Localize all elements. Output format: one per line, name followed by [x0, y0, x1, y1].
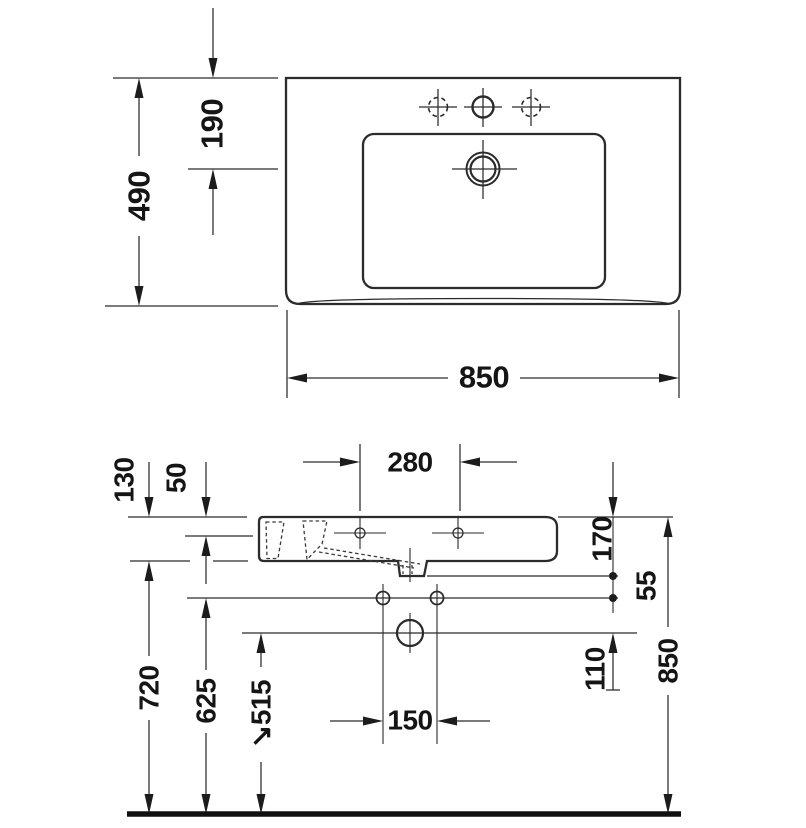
dim-label-170: 170: [587, 516, 618, 561]
dimension-depth-490: 490: [105, 78, 278, 306]
tap-hole-center-icon: [464, 88, 502, 127]
dim-label-110: 110: [580, 647, 611, 691]
top-view: 490 190 850: [105, 8, 680, 398]
profile-tap-hole-right-icon: [432, 518, 484, 549]
side-view: 280 130 50: [109, 444, 684, 814]
dim-label-490: 490: [122, 171, 157, 221]
dim-label-150: 150: [387, 705, 432, 736]
basin-front-edge-line: [298, 299, 668, 304]
dimension-offset-190: 190: [188, 8, 278, 235]
dim-label-190: 190: [195, 99, 230, 149]
tap-hole-left-icon: [419, 89, 457, 126]
dimension-fixing-to-drain-110: 110: [580, 633, 621, 691]
dimension-floor-625: 625: [191, 598, 222, 814]
dim-label-515: ↘515: [246, 680, 277, 748]
dim-label-850-height: 850: [653, 638, 684, 683]
dimension-floor-515: ↘515: [246, 633, 277, 814]
profile-tap-hole-left-icon: [334, 518, 386, 549]
dim-label-55: 55: [631, 571, 662, 601]
tap-hole-right-icon: [512, 89, 550, 126]
dim-label-130: 130: [109, 457, 140, 502]
dimension-width-850: 850: [287, 310, 679, 398]
dim-label-625: 625: [191, 678, 222, 723]
dimension-hole-spacing-150: 150: [330, 705, 490, 736]
dimension-floor-720: 720: [134, 561, 165, 814]
dim-label-50: 50: [161, 463, 192, 493]
dimension-rim-drop-50: 50: [161, 462, 211, 584]
dim-label-850-width: 850: [459, 360, 509, 395]
dim-dot-lower: [609, 594, 617, 602]
dimension-rim-to-outlet-170: 170: [587, 462, 618, 613]
dimension-overall-height-850: 850: [653, 517, 684, 814]
dimension-basin-height-130: 130: [109, 457, 154, 517]
bowl-section-hidden-lines: [266, 521, 420, 574]
dim-label-280: 280: [387, 447, 432, 478]
dim-label-720: 720: [134, 665, 165, 710]
dim-dot-upper: [609, 572, 617, 580]
dimension-tap-spacing-280: 280: [303, 444, 517, 511]
technical-drawing: 490 190 850: [0, 0, 806, 828]
drain-icon: [452, 140, 517, 199]
